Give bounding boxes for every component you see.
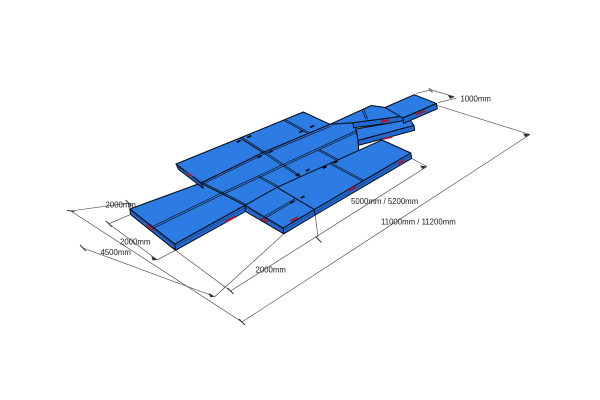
svg-text:2000mm: 2000mm — [120, 238, 150, 247]
svg-text:4500mm: 4500mm — [101, 248, 131, 257]
svg-text:5000mm / 5200mm: 5000mm / 5200mm — [351, 197, 418, 206]
svg-text:2000mm: 2000mm — [256, 266, 286, 275]
svg-text:1000mm: 1000mm — [461, 94, 491, 103]
svg-text:11000mm / 11200mm: 11000mm / 11200mm — [381, 218, 456, 227]
svg-text:2000mm: 2000mm — [106, 201, 136, 210]
